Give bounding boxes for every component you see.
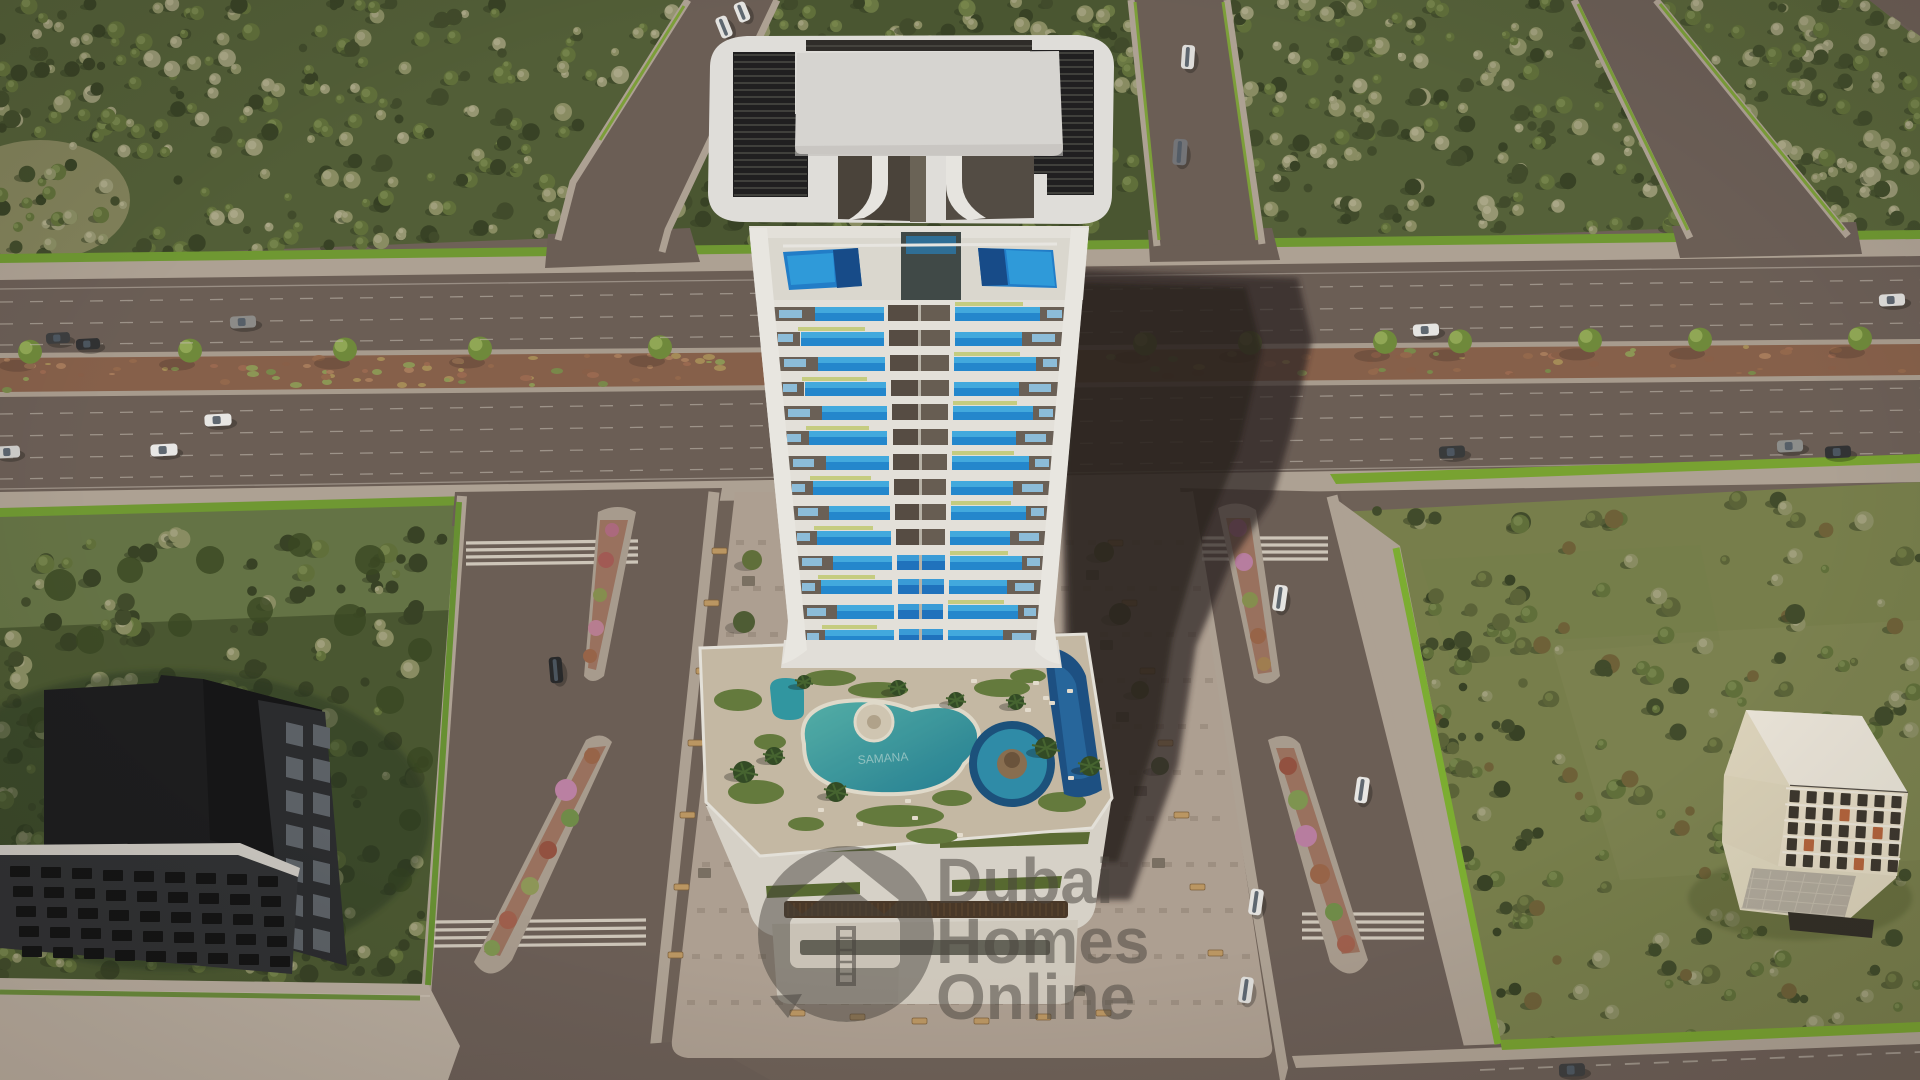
svg-text:Online: Online [936,961,1135,1033]
